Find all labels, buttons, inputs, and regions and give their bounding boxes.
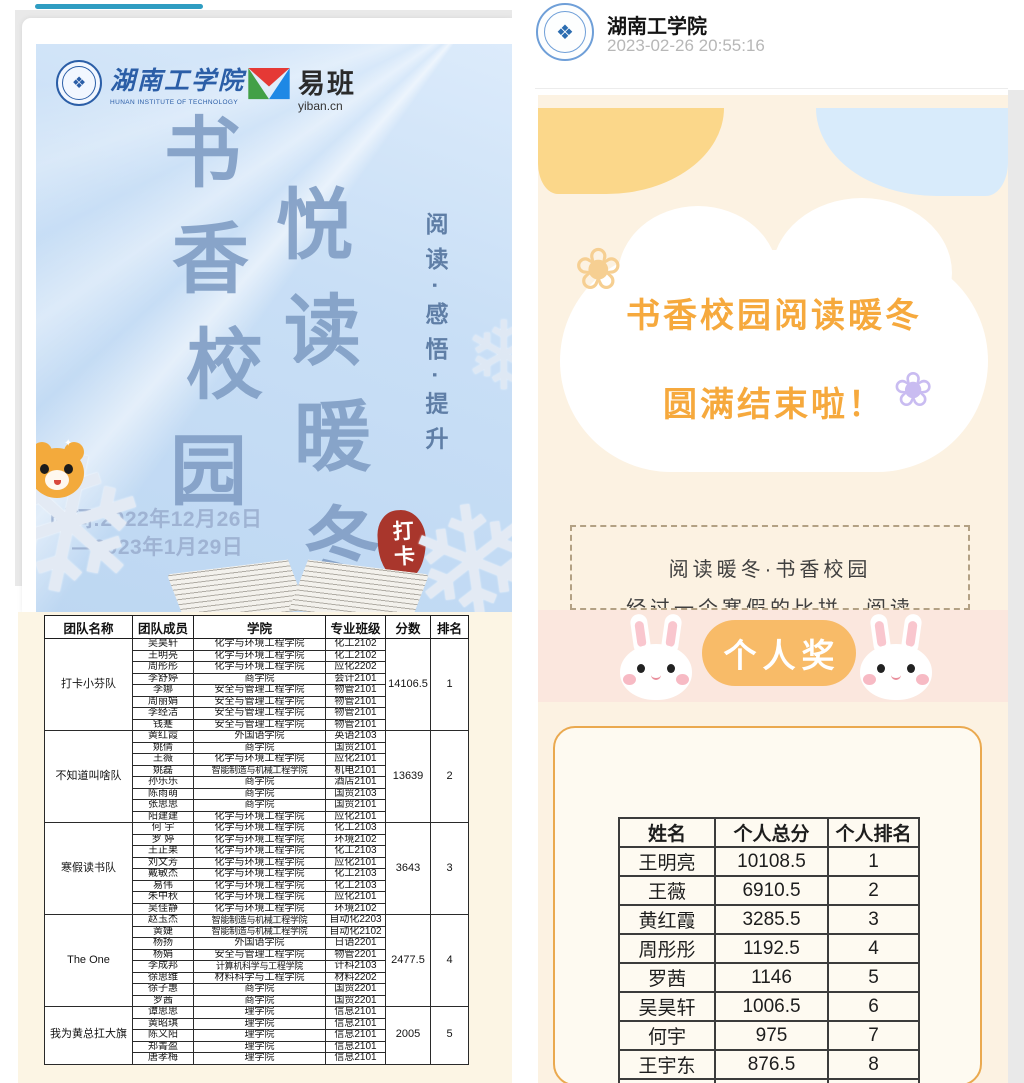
member-name-cell: 徐思维 [133, 972, 194, 984]
member-name-cell: 张思思 [133, 800, 194, 812]
member-name-cell: 徐子惠 [133, 984, 194, 996]
member-college-cell: 材料科学与工程学院 [194, 972, 326, 984]
rabbit-icon-left [620, 614, 692, 700]
member-class-cell: 应化2101 [326, 811, 386, 823]
team-name-cell: 我为黄总扛大旗 [45, 1007, 133, 1065]
team-table-header-cell: 团队名称 [45, 616, 133, 639]
individual-name-cell: 罗茜 [619, 963, 715, 992]
member-name-cell: 李娜 [133, 685, 194, 697]
member-class-cell: 信息2101 [326, 1030, 386, 1042]
individual-score-row: 王宇东876.58 [619, 1050, 919, 1079]
poster-title-column-2: 悦读暖冬 [276, 176, 353, 600]
member-name-cell: 陈义阳 [133, 1030, 194, 1042]
member-name-cell: 周丽娟 [133, 696, 194, 708]
member-college-cell: 安全与管理工程学院 [194, 708, 326, 720]
member-name-cell: 钱蹇 [133, 719, 194, 731]
article-content: 书香校园阅读暖冬 圆满结束啦！ ❀ ❀ 阅读暖冬·书香校园 经过一个寒假的比拼，… [538, 95, 1008, 1083]
event-poster: ❖ 湖南工学院 HUNAN INSTITUTE OF TECHNOLOGY 易班… [36, 44, 512, 612]
member-class-cell: 信息2101 [326, 1018, 386, 1030]
member-name-cell: 戴敏杰 [133, 869, 194, 881]
member-name-cell: 易伟 [133, 880, 194, 892]
member-college-cell: 安全与管理工程学院 [194, 685, 326, 697]
article-view: ❖ 湖南工学院 2023-02-26 20:55:16 书香校园阅读暖冬 圆满结… [512, 0, 1024, 1083]
member-college-cell: 商学院 [194, 800, 326, 812]
team-member-row: 打卡小芬队吴昊轩化学与环境工程学院化工210214106.51 [45, 639, 469, 651]
individual-score-row: 黄红霞3285.53 [619, 905, 919, 934]
team-member-row: The One赵玉杰智能制造与机械工程学院自动化22032477.54 [45, 915, 469, 927]
member-class-cell: 信息2101 [326, 1053, 386, 1065]
member-class-cell: 化工2102 [326, 650, 386, 662]
account-avatar[interactable]: ❖ [536, 3, 594, 61]
member-name-cell: 黄昭琪 [133, 1018, 194, 1030]
member-college-cell: 智能制造与机械工程学院 [194, 926, 326, 938]
team-rank-cell: 4 [431, 915, 469, 1007]
member-name-cell: 唐孝梅 [133, 1053, 194, 1065]
poster-title-column-1: 书香校园 [164, 104, 241, 528]
member-college-cell: 化学与环境工程学院 [194, 857, 326, 869]
individual-table-header-cell: 姓名 [619, 818, 715, 847]
individual-score-row: 王明亮10108.51 [619, 847, 919, 876]
member-college-cell: 商学院 [194, 984, 326, 996]
individual-rank-cell: 1 [828, 847, 919, 876]
member-class-cell: 国贸2201 [326, 984, 386, 996]
member-name-cell: 阳建建 [133, 811, 194, 823]
team-rank-cell: 3 [431, 823, 469, 915]
individual-rank-cell: 3 [828, 905, 919, 934]
team-ranking-table: 团队名称团队成员学院专业班级分数排名 打卡小芬队吴昊轩化学与环境工程学院化工21… [44, 615, 469, 1065]
flower-icon-purple: ❀ [893, 367, 933, 415]
member-class-cell: 国贸2201 [326, 995, 386, 1007]
member-class-cell: 英语2103 [326, 731, 386, 743]
individual-award-badge: 个人奖 [702, 620, 856, 686]
individual-score-row: 何宇9757 [619, 1021, 919, 1050]
member-college-cell: 商学院 [194, 673, 326, 685]
member-class-cell: 自动化2203 [326, 915, 386, 927]
member-college-cell: 安全与管理工程学院 [194, 696, 326, 708]
team-rank-cell: 1 [431, 639, 469, 731]
individual-score-cell: 3285.5 [715, 905, 828, 934]
member-name-cell: 黄红霞 [133, 731, 194, 743]
member-college-cell: 理学院 [194, 1041, 326, 1053]
yiban-logo-icon [246, 62, 292, 104]
member-class-cell: 化工2103 [326, 869, 386, 881]
member-name-cell: 刘文芳 [133, 857, 194, 869]
team-table-header-cell: 学院 [194, 616, 326, 639]
team-ranking-section: 团队名称团队成员学院专业班级分数排名 打卡小芬队吴昊轩化学与环境工程学院化工21… [0, 612, 512, 1083]
individual-score-cell: 1192.5 [715, 934, 828, 963]
member-college-cell: 计算机科学与工程学院 [194, 961, 326, 973]
member-name-cell: 孙乐乐 [133, 777, 194, 789]
member-name-cell: 李成邦 [133, 961, 194, 973]
member-name-cell: 何 宇 [133, 823, 194, 835]
team-rank-cell: 2 [431, 731, 469, 823]
member-name-cell: 姚倩 [133, 742, 194, 754]
individual-score-cell: 975 [715, 1021, 828, 1050]
member-class-cell: 化工2103 [326, 846, 386, 858]
tab-indicator[interactable] [35, 4, 203, 9]
team-score-cell: 3643 [386, 823, 431, 915]
team-score-cell: 2477.5 [386, 915, 431, 1007]
member-college-cell: 安全与管理工程学院 [194, 719, 326, 731]
member-college-cell: 理学院 [194, 1053, 326, 1065]
member-class-cell: 自动化2102 [326, 926, 386, 938]
rabbit-icon-right [860, 614, 932, 700]
individual-score-cell: 754.5 [715, 1079, 828, 1083]
member-class-cell: 应化2202 [326, 662, 386, 674]
notice-box: 阅读暖冬·书香校园 经过一个寒假的比拼，阅读 [570, 525, 970, 610]
individual-score-cell: 1006.5 [715, 992, 828, 1021]
team-name-cell: 寒假读书队 [45, 823, 133, 915]
individual-name-cell: 姚磊 [619, 1079, 715, 1083]
member-name-cell: 吴昊轩 [133, 639, 194, 651]
member-class-cell: 酒店2101 [326, 777, 386, 789]
member-college-cell: 理学院 [194, 1030, 326, 1042]
poster-title-char: 香 [172, 210, 249, 316]
team-member-row: 我为黄总扛大旗谭思思理学院信息210120055 [45, 1007, 469, 1019]
individual-name-cell: 吴昊轩 [619, 992, 715, 1021]
post-timestamp: 2023-02-26 20:55:16 [607, 36, 765, 56]
member-class-cell: 机电2101 [326, 765, 386, 777]
member-college-cell: 商学院 [194, 995, 326, 1007]
header-divider [535, 88, 1008, 89]
team-name-cell: 不知道叫啥队 [45, 731, 133, 823]
member-name-cell: 周彤彤 [133, 662, 194, 674]
member-class-cell: 物管2101 [326, 696, 386, 708]
team-score-cell: 2005 [386, 1007, 431, 1065]
individual-score-row: 罗茜11465 [619, 963, 919, 992]
member-name-cell: 姚磊 [133, 765, 194, 777]
member-class-cell: 物管2101 [326, 719, 386, 731]
yiban-domain: yiban.cn [298, 99, 356, 113]
member-college-cell: 商学院 [194, 742, 326, 754]
individual-name-cell: 周彤彤 [619, 934, 715, 963]
bear-mascot-icon: ✦ [36, 442, 86, 502]
poster-title-char: 读 [284, 282, 361, 388]
individual-rank-cell: 2 [828, 876, 919, 905]
member-name-cell: 郑菁盈 [133, 1041, 194, 1053]
individual-name-cell: 王薇 [619, 876, 715, 905]
member-name-cell: 杨扬 [133, 938, 194, 950]
individual-rank-cell: 9 [828, 1079, 919, 1083]
member-name-cell: 杨娟 [133, 949, 194, 961]
member-class-cell: 化工2103 [326, 823, 386, 835]
member-name-cell: 罗茜 [133, 995, 194, 1007]
poster-title-char: 悦 [276, 176, 353, 282]
member-name-cell: 王薇 [133, 754, 194, 766]
individual-rank-cell: 6 [828, 992, 919, 1021]
member-class-cell: 物管2101 [326, 685, 386, 697]
individual-table-header-cell: 个人排名 [828, 818, 919, 847]
individual-score-table: 姓名个人总分个人排名 王明亮10108.51王薇6910.52黄红霞3285.5… [618, 817, 920, 1083]
member-name-cell: 赵玉杰 [133, 915, 194, 927]
member-college-cell: 化学与环境工程学院 [194, 880, 326, 892]
member-college-cell: 安全与管理工程学院 [194, 949, 326, 961]
member-class-cell: 国贸2101 [326, 742, 386, 754]
individual-score-row: 周彤彤1192.54 [619, 934, 919, 963]
member-name-cell: 吴佳静 [133, 903, 194, 915]
member-class-cell: 会计2101 [326, 673, 386, 685]
deco-blob-blue [816, 108, 1008, 196]
individual-rank-cell: 4 [828, 934, 919, 963]
snowflake-icon: ❄ [464, 310, 512, 405]
member-name-cell: 谭思思 [133, 1007, 194, 1019]
member-class-cell: 化工2102 [326, 639, 386, 651]
member-name-cell: 王明亮 [133, 650, 194, 662]
individual-rank-cell: 7 [828, 1021, 919, 1050]
member-class-cell: 国贸2103 [326, 788, 386, 800]
team-score-cell: 13639 [386, 731, 431, 823]
yiban-name: 易班 [298, 62, 356, 101]
member-name-cell: 李经洁 [133, 708, 194, 720]
individual-score-cell: 876.5 [715, 1050, 828, 1079]
poster-title-char: 暖 [294, 388, 371, 494]
member-college-cell: 商学院 [194, 788, 326, 800]
member-college-cell: 外国语学院 [194, 938, 326, 950]
member-name-cell: 陈雨萌 [133, 788, 194, 800]
individual-score-cell: 1146 [715, 963, 828, 992]
account-name[interactable]: 湖南工学院 [607, 10, 707, 39]
member-name-cell: 朱中秋 [133, 892, 194, 904]
team-name-cell: The One [45, 915, 133, 1007]
member-college-cell: 智能制造与机械工程学院 [194, 915, 326, 927]
notice-line2: 经过一个寒假的比拼，阅读 [572, 592, 968, 610]
member-class-cell: 环境2102 [326, 903, 386, 915]
team-table-header-cell: 专业班级 [326, 616, 386, 639]
individual-table-header-row: 姓名个人总分个人排名 [619, 818, 919, 847]
award-card: 姓名个人总分个人排名 王明亮10108.51王薇6910.52黄红霞3285.5… [553, 726, 982, 1083]
school-seal-icon: ❖ [544, 11, 586, 53]
member-college-cell: 化学与环境工程学院 [194, 834, 326, 846]
individual-rank-cell: 5 [828, 963, 919, 992]
page-background-right [1008, 90, 1024, 1083]
deco-blob-orange [538, 108, 724, 194]
member-class-cell: 日语2201 [326, 938, 386, 950]
team-table-header-cell: 分数 [386, 616, 431, 639]
team-table-header-row: 团队名称团队成员学院专业班级分数排名 [45, 616, 469, 639]
member-class-cell: 物管2201 [326, 949, 386, 961]
member-college-cell: 化学与环境工程学院 [194, 846, 326, 858]
team-rank-cell: 5 [431, 1007, 469, 1065]
member-class-cell: 应化2101 [326, 857, 386, 869]
team-name-cell: 打卡小芬队 [45, 639, 133, 731]
individual-name-cell: 黄红霞 [619, 905, 715, 934]
team-table-header-cell: 团队成员 [133, 616, 194, 639]
member-college-cell: 化学与环境工程学院 [194, 869, 326, 881]
left-poster-page: ❖ 湖南工学院 HUNAN INSTITUTE OF TECHNOLOGY 易班… [0, 0, 512, 1083]
school-seal-icon: ❖ [56, 60, 102, 106]
member-college-cell: 化学与环境工程学院 [194, 639, 326, 651]
member-college-cell: 化学与环境工程学院 [194, 754, 326, 766]
member-class-cell: 信息2101 [326, 1041, 386, 1053]
screenshot-root: ❖ 湖南工学院 HUNAN INSTITUTE OF TECHNOLOGY 易班… [0, 0, 1024, 1083]
yiban-logo: 易班 yiban.cn [246, 62, 356, 113]
member-college-cell: 化学与环境工程学院 [194, 903, 326, 915]
individual-name-cell: 王宇东 [619, 1050, 715, 1079]
member-college-cell: 化学与环境工程学院 [194, 662, 326, 674]
member-name-cell: 王正果 [133, 846, 194, 858]
school-name: 湖南工学院 [110, 61, 245, 97]
individual-score-cell: 6910.5 [715, 876, 828, 905]
open-book-graphic [176, 562, 426, 612]
flower-icon-orange: ❀ [574, 241, 623, 299]
member-college-cell: 化学与环境工程学院 [194, 892, 326, 904]
notice-line1: 阅读暖冬·书香校园 [572, 553, 968, 582]
individual-score-cell: 10108.5 [715, 847, 828, 876]
poster-title-char: 校 [186, 316, 263, 422]
team-member-row: 寒假读书队何 宇化学与环境工程学院化工210336433 [45, 823, 469, 835]
member-college-cell: 化学与环境工程学院 [194, 650, 326, 662]
member-class-cell: 国贸2101 [326, 800, 386, 812]
member-college-cell: 化学与环境工程学院 [194, 811, 326, 823]
member-college-cell: 智能制造与机械工程学院 [194, 765, 326, 777]
member-name-cell: 李舒婷 [133, 673, 194, 685]
individual-name-cell: 王明亮 [619, 847, 715, 876]
member-name-cell: 黄婕 [133, 926, 194, 938]
member-college-cell: 外国语学院 [194, 731, 326, 743]
member-college-cell: 化学与环境工程学院 [194, 823, 326, 835]
member-college-cell: 理学院 [194, 1018, 326, 1030]
individual-score-row: 王薇6910.52 [619, 876, 919, 905]
member-class-cell: 环境2102 [326, 834, 386, 846]
member-name-cell: 罗 婷 [133, 834, 194, 846]
team-score-cell: 14106.5 [386, 639, 431, 731]
member-class-cell: 应化2101 [326, 754, 386, 766]
member-college-cell: 商学院 [194, 777, 326, 789]
member-college-cell: 理学院 [194, 1007, 326, 1019]
school-logo-text: 湖南工学院 HUNAN INSTITUTE OF TECHNOLOGY [110, 61, 245, 106]
individual-rank-cell: 8 [828, 1050, 919, 1079]
member-class-cell: 化工2103 [326, 880, 386, 892]
poster-title-char: 书 [164, 104, 241, 210]
title-cloud: 书香校园阅读暖冬 圆满结束啦！ [560, 250, 988, 472]
award-band: 个人奖 [538, 610, 1008, 702]
member-class-cell: 物管2101 [326, 708, 386, 720]
team-table-header-cell: 排名 [431, 616, 469, 639]
member-class-cell: 材料2202 [326, 972, 386, 984]
individual-score-row: 姚磊754.59 [619, 1079, 919, 1083]
member-class-cell: 信息2101 [326, 1007, 386, 1019]
member-class-cell: 计科2103 [326, 961, 386, 973]
hero-title-line1: 书香校园阅读暖冬 [560, 250, 988, 337]
team-member-row: 不知道叫啥队黄红霞外国语学院英语2103136392 [45, 731, 469, 743]
individual-name-cell: 何宇 [619, 1021, 715, 1050]
member-class-cell: 应化2101 [326, 892, 386, 904]
individual-table-header-cell: 个人总分 [715, 818, 828, 847]
individual-score-row: 吴昊轩1006.56 [619, 992, 919, 1021]
badge-label: 个人奖 [718, 629, 841, 677]
